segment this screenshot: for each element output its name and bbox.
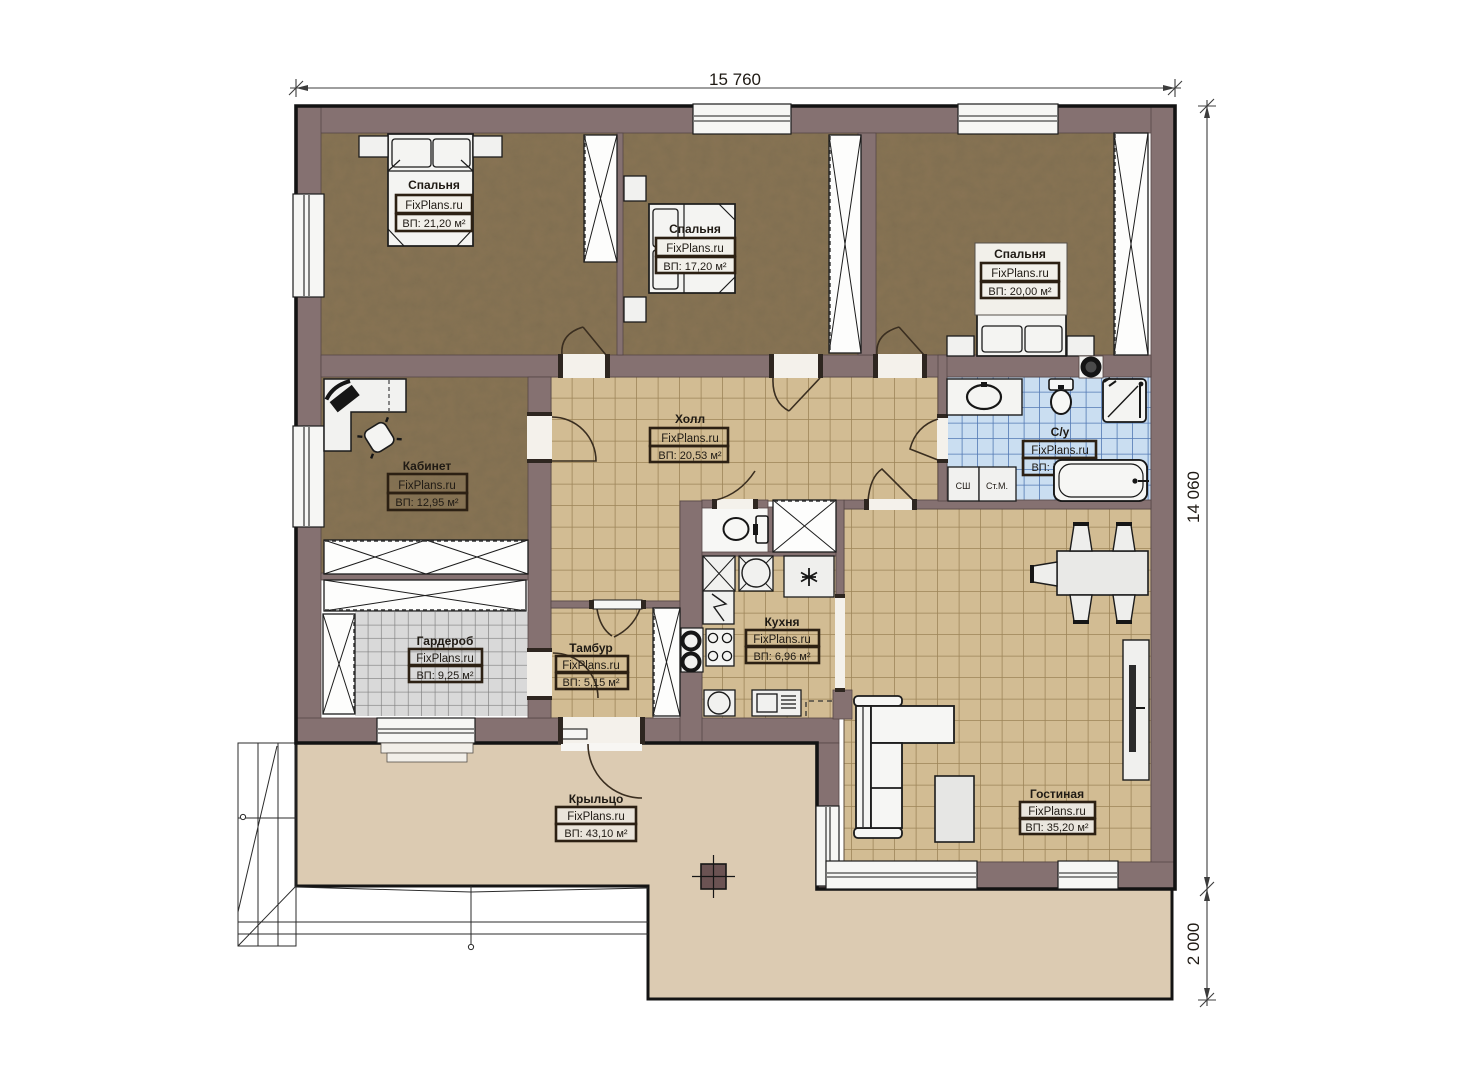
svg-text:FixPlans.ru: FixPlans.ru (567, 811, 625, 823)
svg-text:Кабинет: Кабинет (403, 459, 452, 473)
svg-text:Спальня: Спальня (994, 247, 1046, 261)
svg-text:FixPlans.ru: FixPlans.ru (666, 243, 724, 255)
svg-text:Кухня: Кухня (764, 615, 799, 629)
svg-text:FixPlans.ru: FixPlans.ru (1028, 806, 1086, 818)
svg-text:Холл: Холл (675, 412, 705, 426)
svg-text:ВП: 20,53 м²: ВП: 20,53 м² (658, 450, 722, 462)
svg-text:Спальня: Спальня (669, 222, 721, 236)
svg-text:2 000: 2 000 (1184, 923, 1203, 966)
svg-text:ВП: 17,20 м²: ВП: 17,20 м² (663, 261, 727, 273)
svg-text:Гостиная: Гостиная (1030, 787, 1084, 801)
svg-text:Спальня: Спальня (408, 178, 460, 192)
svg-text:ВП: 12,95 м²: ВП: 12,95 м² (395, 497, 459, 509)
svg-text:ВП: 35,20 м²: ВП: 35,20 м² (1025, 822, 1089, 834)
svg-text:С/у: С/у (1051, 425, 1070, 439)
svg-text:ВП: 21,20 м²: ВП: 21,20 м² (402, 218, 466, 230)
svg-text:ВП: 9,25 м²: ВП: 9,25 м² (416, 670, 473, 682)
svg-text:Крыльцо: Крыльцо (569, 792, 624, 806)
svg-text:FixPlans.ru: FixPlans.ru (398, 480, 456, 492)
svg-text:ВП: 20,00 м²: ВП: 20,00 м² (988, 286, 1052, 298)
svg-text:FixPlans.ru: FixPlans.ru (405, 200, 463, 212)
svg-text:ВП: 5,15 м²: ВП: 5,15 м² (562, 677, 619, 689)
svg-text:FixPlans.ru: FixPlans.ru (753, 634, 811, 646)
svg-text:FixPlans.ru: FixPlans.ru (661, 433, 719, 445)
svg-text:Гардероб: Гардероб (417, 634, 474, 648)
svg-text:FixPlans.ru: FixPlans.ru (991, 268, 1049, 280)
svg-text:ВП: 6,96 м²: ВП: 6,96 м² (753, 651, 810, 663)
svg-text:Тамбур: Тамбур (569, 641, 613, 655)
svg-text:ВП: 43,10 м²: ВП: 43,10 м² (564, 828, 628, 840)
svg-text:СШ: СШ (956, 481, 971, 491)
svg-text:FixPlans.ru: FixPlans.ru (1031, 445, 1089, 457)
svg-text:14 060: 14 060 (1184, 471, 1203, 523)
svg-text:Ст.М.: Ст.М. (986, 481, 1008, 491)
svg-text:FixPlans.ru: FixPlans.ru (562, 660, 620, 672)
svg-text:FixPlans.ru: FixPlans.ru (416, 653, 474, 665)
svg-text:15 760: 15 760 (709, 70, 761, 89)
